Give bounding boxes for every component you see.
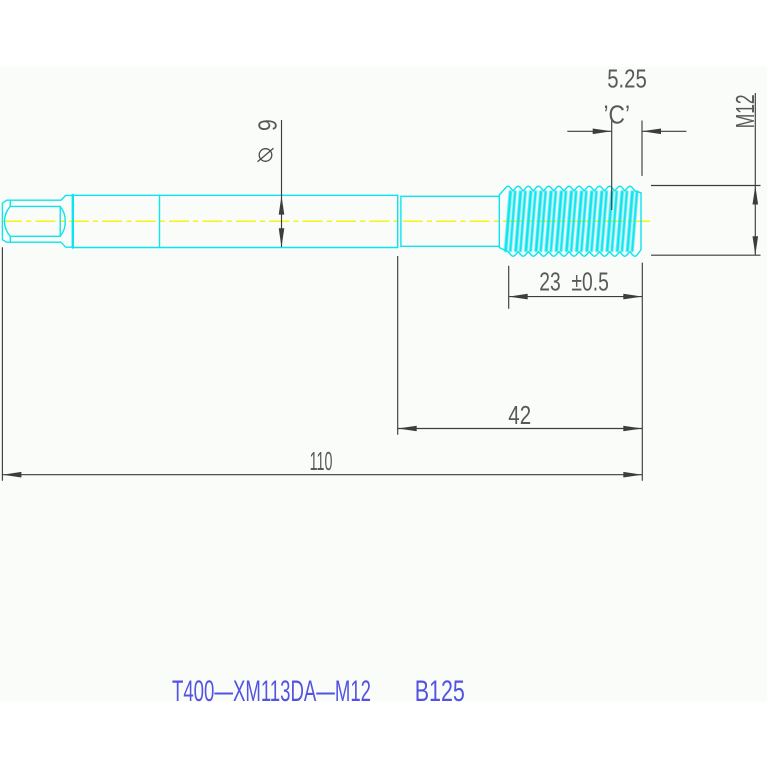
- svg-text:5.25: 5.25: [607, 63, 647, 93]
- svg-text:T400—XM113DA—M12: T400—XM113DA—M12: [172, 675, 371, 708]
- svg-text:42: 42: [508, 400, 531, 430]
- svg-text:’C’: ’C’: [604, 99, 631, 129]
- svg-text:110: 110: [310, 446, 333, 476]
- svg-text:B125: B125: [415, 675, 465, 708]
- svg-text:23 ±0.5: 23 ±0.5: [539, 266, 609, 296]
- svg-text:M12: M12: [730, 94, 760, 128]
- svg-text:9: 9: [253, 119, 283, 131]
